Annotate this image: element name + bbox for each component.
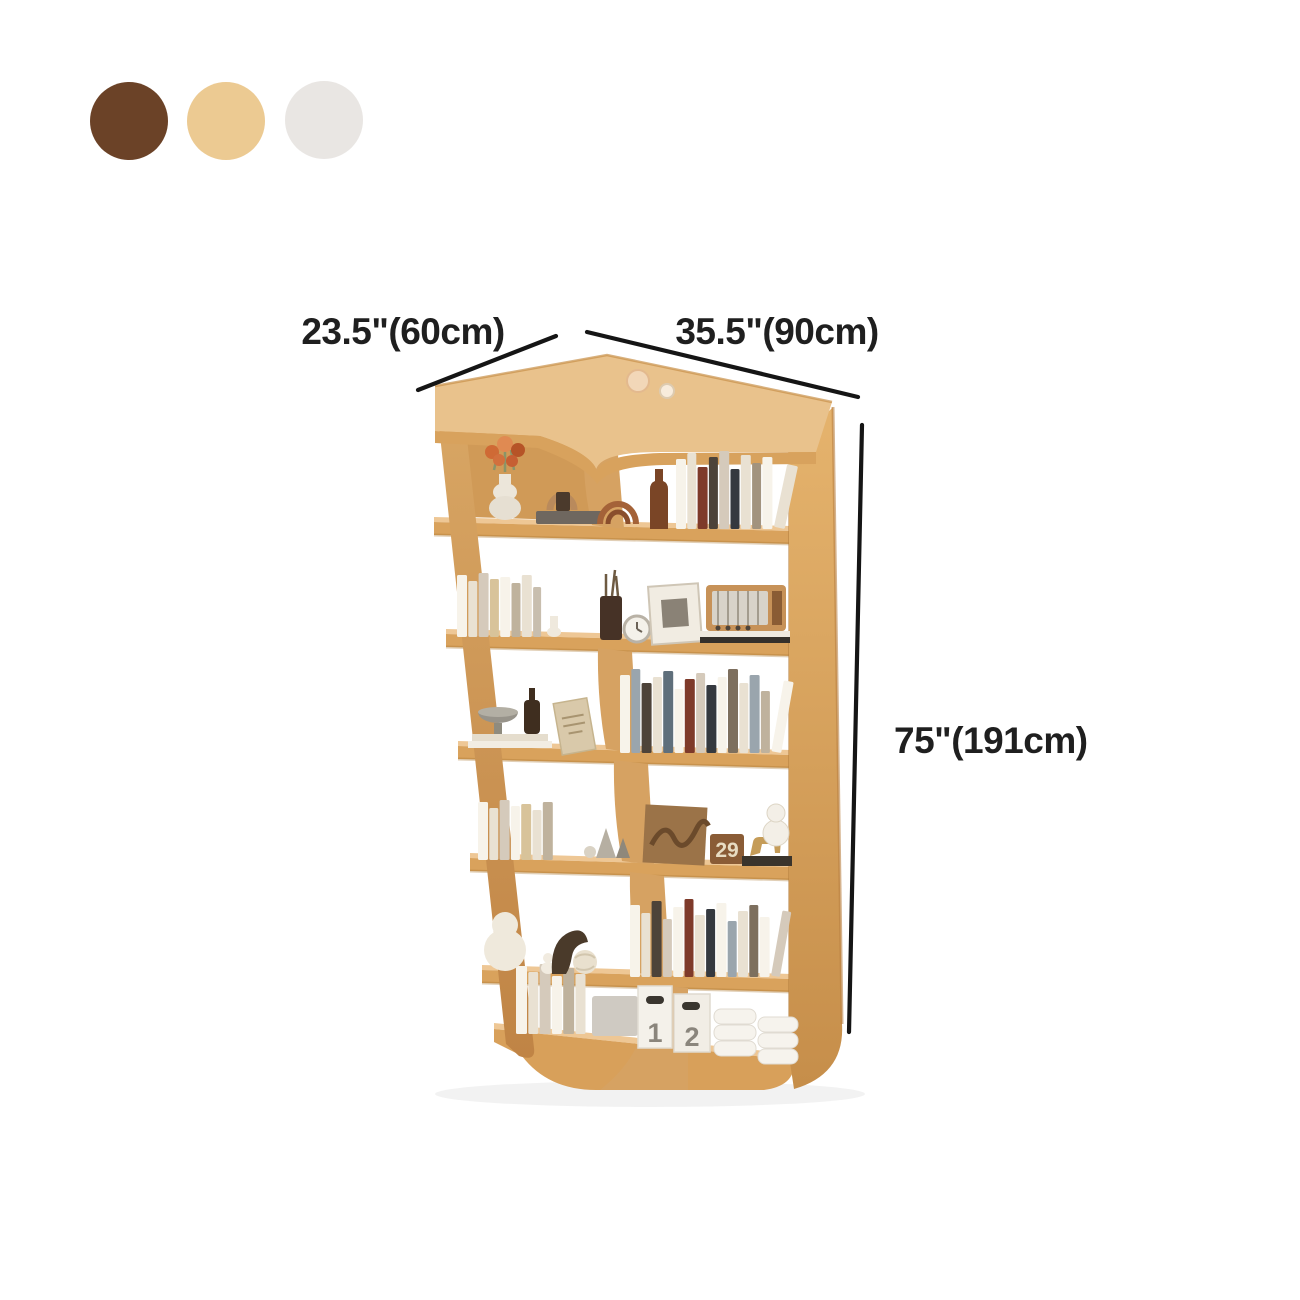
book-spine [631,669,640,753]
book-spine [630,905,640,977]
book-spine [709,457,718,529]
book-spine [540,964,551,1034]
product-image: 29 [0,0,1300,1300]
calendar-block: 29 [710,834,744,864]
calendar-text: 29 [715,839,738,862]
dimension-label-left-depth: 23.5"(60cm) [301,311,504,353]
book-spine [576,974,586,1034]
book-spine [642,683,652,753]
book-spine [685,899,694,977]
pen-cup [600,570,622,640]
book-spine [762,457,772,529]
book-spine [511,806,520,860]
book-spine [739,683,748,753]
book-spine [653,677,662,753]
dimension-line-height [849,425,862,1032]
book-spine [500,800,510,860]
book-spine [516,966,527,1034]
right-side-panel [788,407,842,1089]
book-spine [675,689,684,753]
book-spine [663,919,672,977]
book-spine [685,679,695,753]
wood-art-relief [643,804,710,865]
book-spine [641,913,650,977]
book-spine [533,810,542,860]
book-spine [522,575,532,637]
tray-stack-b [758,1017,798,1064]
glass-sphere [660,384,674,398]
bookshelf-illustration: 29 [0,0,1300,1300]
file-box-1-label: 1 [647,1018,662,1048]
amber-bottle [650,469,668,529]
book-spine [706,909,715,977]
book-spine [620,675,630,753]
book-spine [698,467,708,529]
book-spine [478,802,488,860]
book-spine [563,968,574,1034]
alarm-clock [624,616,650,642]
cream-sphere [627,370,649,392]
book-spine [696,673,705,753]
book-spine [676,459,686,529]
dimension-label-right-width: 35.5"(90cm) [675,311,878,353]
vintage-radio [700,585,790,643]
book-spine [489,808,498,860]
book-spine [749,905,758,977]
book-spine [543,802,553,860]
gourd-lamp [763,804,789,846]
tier4-decor: 29 [584,804,792,866]
knot-ball [573,950,597,974]
book-spine [663,671,673,753]
book-spine [728,669,738,753]
book-spine [533,587,541,637]
dark-book-stack [742,856,792,866]
book-stack [468,741,552,748]
dimension-label-height: 75"(191cm) [894,720,1088,762]
book-spine [552,976,562,1034]
book-spine [716,903,726,977]
storage-bin [592,996,638,1036]
book-spine [706,685,716,753]
book-spine [738,911,748,977]
photo-frame [648,583,702,644]
book-spine [741,455,751,529]
book-spine [719,451,729,529]
book-spine [752,463,761,529]
file-box-2-label: 2 [684,1022,699,1052]
book-spine [479,573,489,637]
book-spine [695,915,705,977]
book-spine [760,917,770,977]
book-spine [528,972,538,1034]
book-spine [521,804,531,860]
book-spine [673,907,683,977]
diffuser-bottle [524,688,540,734]
book-spine [457,575,467,637]
file-box-2: 2 [674,994,710,1052]
book-spine [750,675,760,753]
book-spine [490,579,499,637]
tray-stack-a [714,1009,756,1056]
book-spine [731,469,740,529]
book-spine [687,453,696,529]
book-spine [512,583,521,637]
book-spine [500,577,510,637]
book-spine [728,921,737,977]
file-box-1: 1 [638,986,672,1048]
book-spine [468,581,477,637]
book-spine [718,677,727,753]
book-spine [761,691,770,753]
cone-ornament [596,828,616,858]
book-spine [652,901,662,977]
